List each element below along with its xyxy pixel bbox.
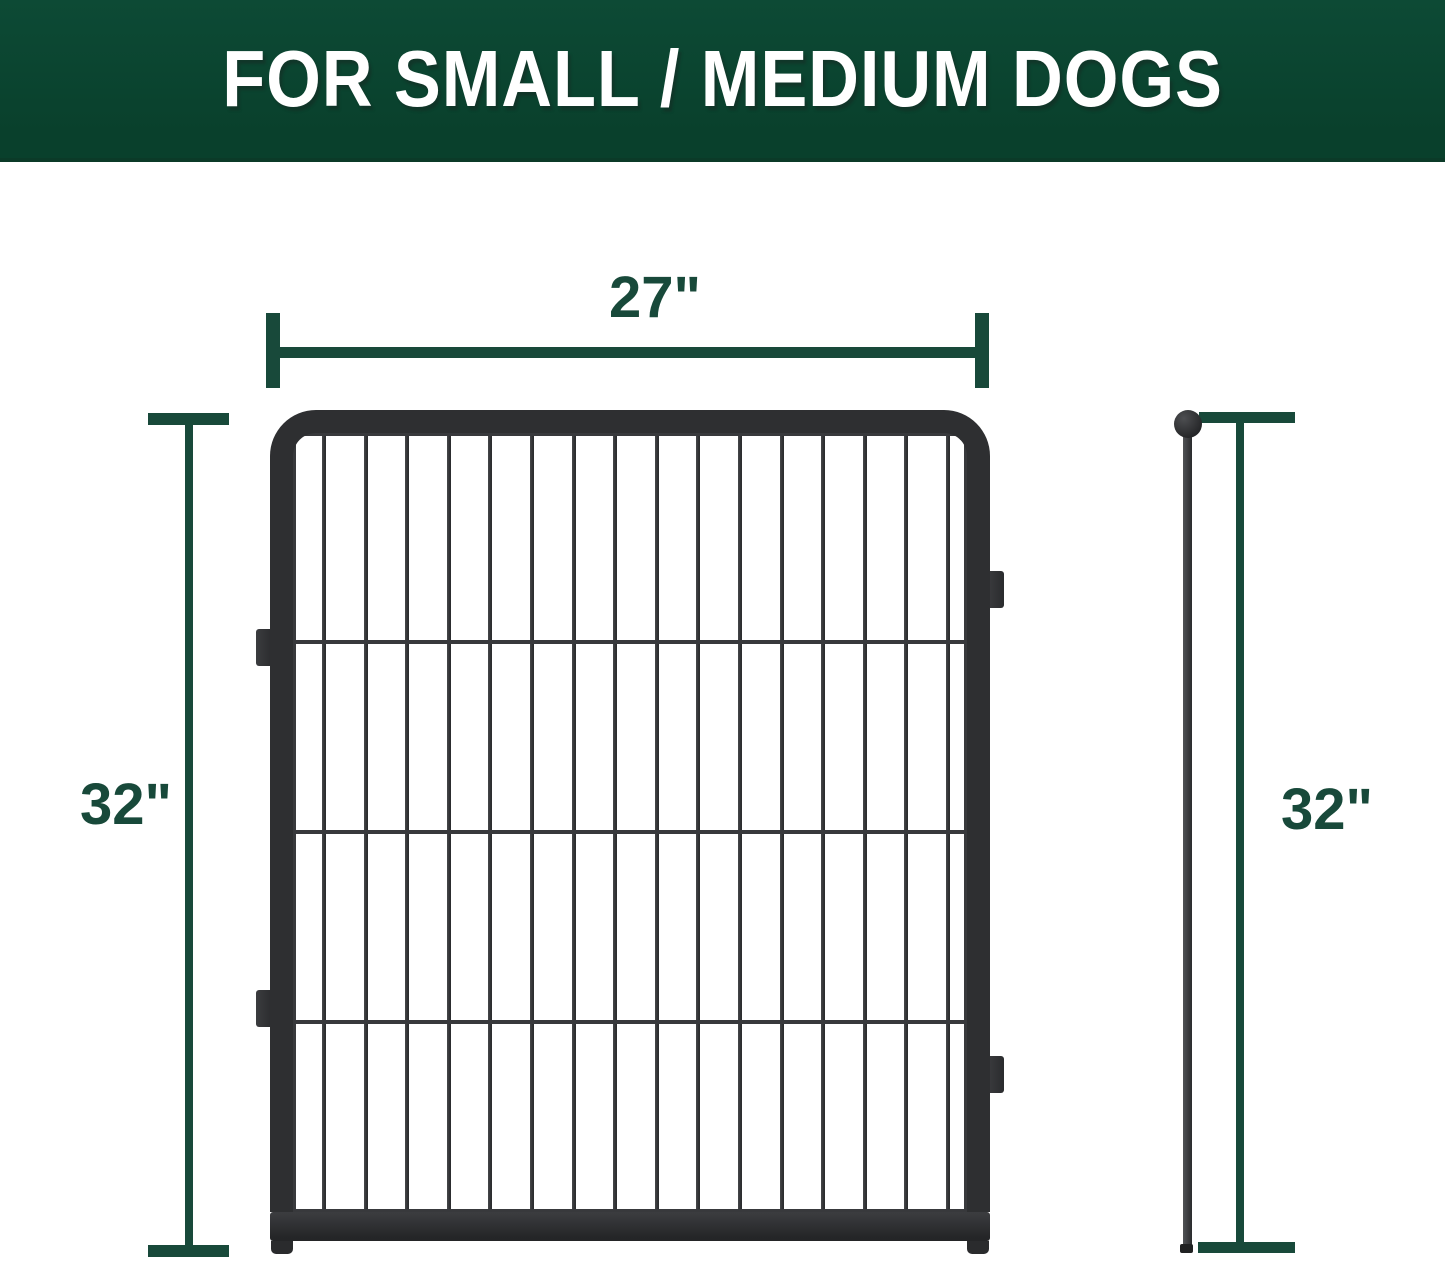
panel-foot-right [967,1241,989,1254]
side-height-dimension-line [1236,412,1244,1253]
front-height-dimension-line [185,413,193,1257]
width-dimension-label: 27" [455,268,855,328]
width-dimension-cap-left [266,313,280,388]
width-dimension-line [278,347,977,358]
front-height-dimension-cap-bottom [148,1245,229,1257]
panel-bottom-rail [270,1212,990,1241]
panel-frame [270,410,990,1212]
banner-title: FOR SMALL / MEDIUM DOGS [222,33,1223,125]
width-dimension-cap-right [975,313,989,388]
side-view-foot [1180,1244,1193,1253]
side-height-dimension-cap-bottom [1198,1242,1295,1253]
side-view-pole [1183,430,1192,1246]
front-height-dimension-label: 32" [18,775,172,835]
side-height-dimension-cap-top [1199,412,1295,423]
panel-foot-left [271,1241,293,1254]
header-banner: FOR SMALL / MEDIUM DOGS [0,0,1445,162]
side-height-dimension-label: 32" [1262,780,1392,840]
front-height-dimension-cap-top [148,413,229,425]
product-infographic: FOR SMALL / MEDIUM DOGS 27" 32" 32" [0,0,1445,1262]
side-view-ball-top-icon [1174,410,1202,438]
